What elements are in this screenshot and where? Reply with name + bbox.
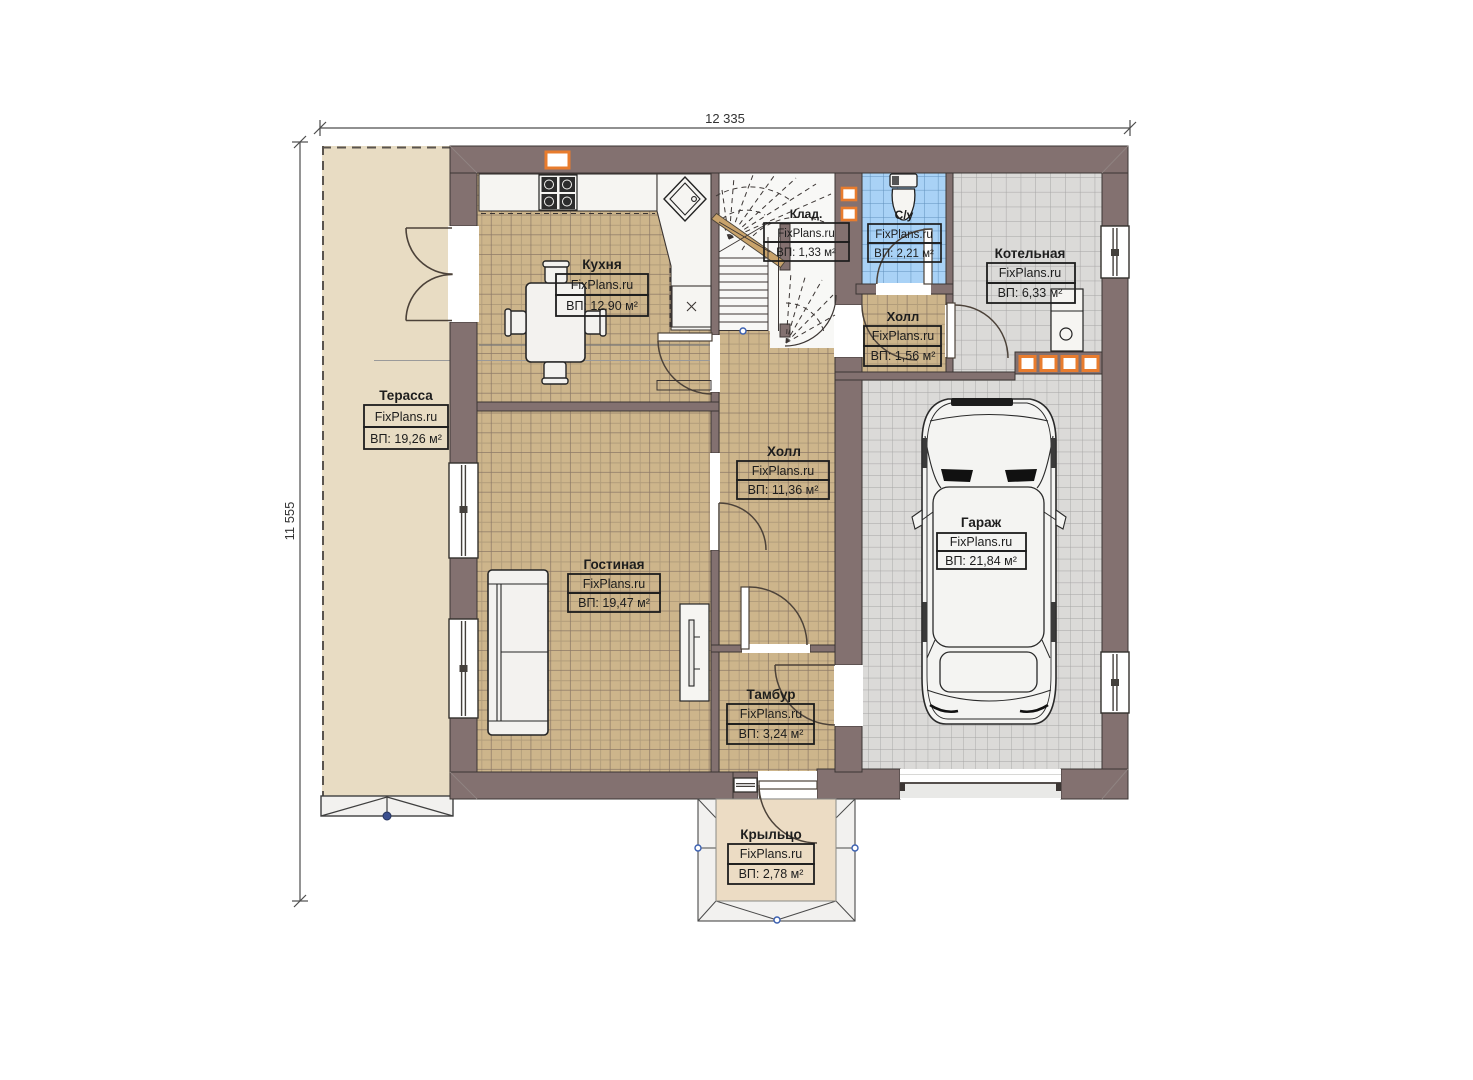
svg-text:FixPlans.ru: FixPlans.ru — [583, 577, 646, 591]
svg-text:ВП: 2,78 м²: ВП: 2,78 м² — [739, 867, 804, 881]
svg-text:FixPlans.ru: FixPlans.ru — [872, 329, 935, 343]
svg-text:FixPlans.ru: FixPlans.ru — [740, 847, 803, 861]
svg-text:ВП: 2,21 м²: ВП: 2,21 м² — [874, 248, 934, 260]
svg-text:FixPlans.ru: FixPlans.ru — [777, 228, 835, 240]
svg-text:Кухня: Кухня — [582, 257, 621, 272]
svg-text:FixPlans.ru: FixPlans.ru — [740, 707, 803, 721]
svg-text:ВП: 1,33 м²: ВП: 1,33 м² — [776, 247, 836, 259]
svg-text:FixPlans.ru: FixPlans.ru — [999, 266, 1062, 280]
svg-text:ВП: 21,84 м²: ВП: 21,84 м² — [945, 554, 1017, 568]
svg-text:ВП: 19,26 м²: ВП: 19,26 м² — [370, 432, 442, 446]
svg-text:FixPlans.ru: FixPlans.ru — [375, 410, 438, 424]
svg-text:FixPlans.ru: FixPlans.ru — [950, 535, 1013, 549]
svg-text:ВП: 6,33 м²: ВП: 6,33 м² — [998, 286, 1063, 300]
svg-text:С/у: С/у — [895, 208, 914, 222]
svg-text:Холл: Холл — [767, 444, 801, 459]
svg-text:Холл: Холл — [887, 309, 920, 324]
svg-text:Гараж: Гараж — [961, 515, 1002, 530]
svg-text:FixPlans.ru: FixPlans.ru — [752, 464, 815, 478]
svg-text:Гостиная: Гостиная — [583, 557, 644, 572]
svg-text:ВП: 12,90 м²: ВП: 12,90 м² — [566, 299, 638, 313]
svg-text:11 555: 11 555 — [282, 502, 297, 541]
svg-text:ВП: 11,36 м²: ВП: 11,36 м² — [748, 483, 819, 497]
svg-text:FixPlans.ru: FixPlans.ru — [571, 278, 634, 292]
svg-text:Клад.: Клад. — [790, 207, 823, 221]
svg-text:Котельная: Котельная — [995, 246, 1066, 261]
svg-text:ВП: 3,24 м²: ВП: 3,24 м² — [739, 727, 804, 741]
svg-text:Крыльцо: Крыльцо — [740, 827, 801, 842]
svg-text:Терасса: Терасса — [379, 388, 433, 403]
svg-text:ВП: 19,47 м²: ВП: 19,47 м² — [578, 596, 650, 610]
svg-text:ВП: 1,56 м²: ВП: 1,56 м² — [871, 349, 936, 363]
svg-text:12 335: 12 335 — [705, 111, 745, 126]
svg-text:Тамбур: Тамбур — [747, 687, 796, 702]
svg-text:FixPlans.ru: FixPlans.ru — [875, 229, 933, 241]
